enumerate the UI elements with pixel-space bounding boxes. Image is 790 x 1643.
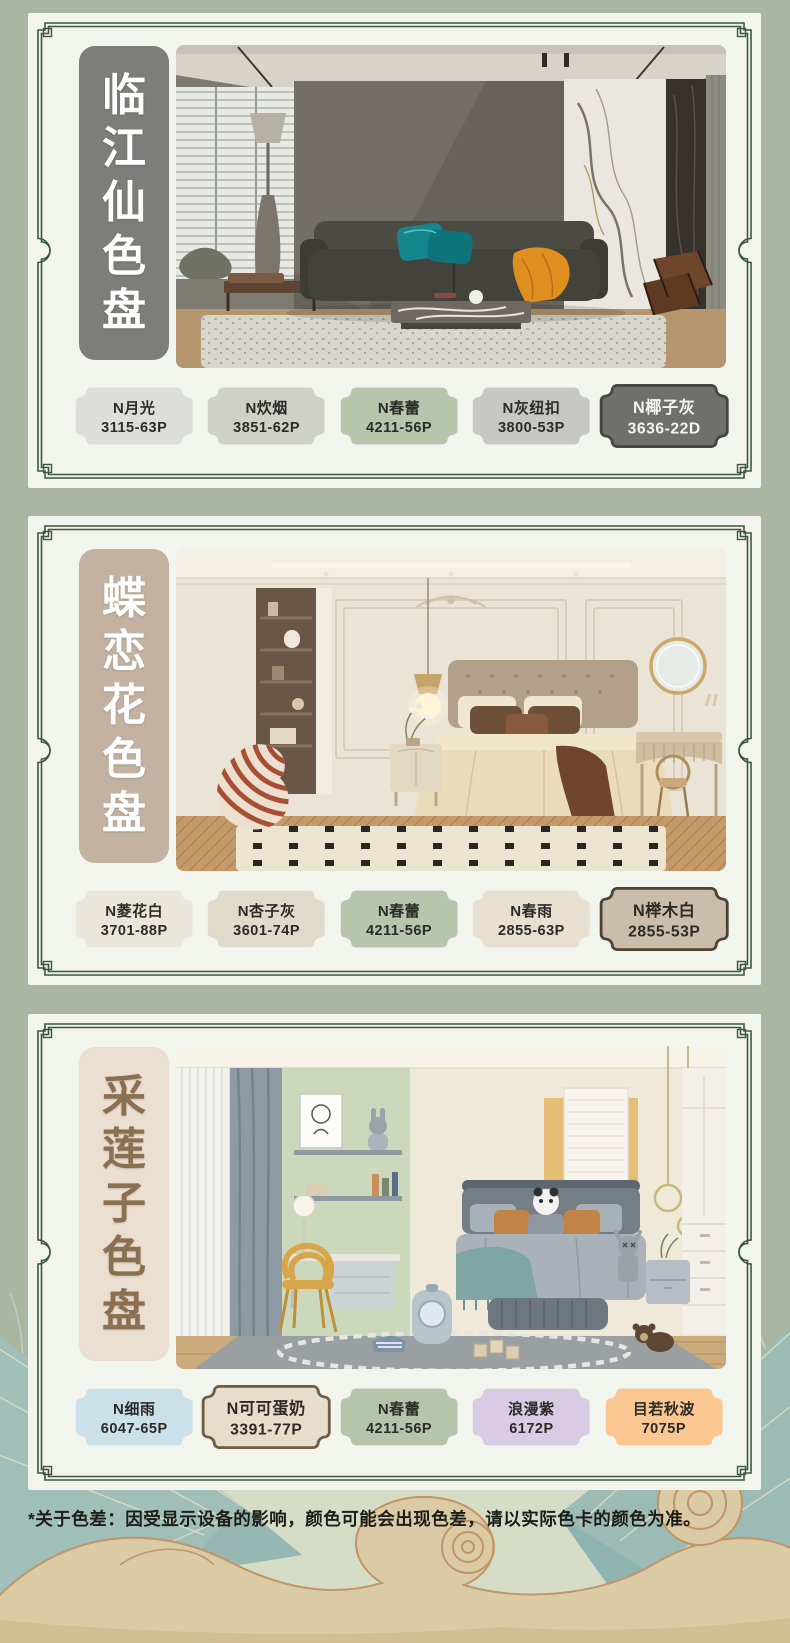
swatch-name: N春蕾 xyxy=(378,900,420,921)
palette-title-block: 蝶恋花色盘 xyxy=(79,549,169,863)
swatch-name: N细雨 xyxy=(113,1398,155,1419)
swatch-name: 目若秋波 xyxy=(633,1398,695,1419)
swatch-name: N炊烟 xyxy=(245,397,287,418)
page-root: 临江仙色盘 xyxy=(0,0,790,1643)
palette-card-dielianhua: 蝶恋花色盘 xyxy=(28,516,761,985)
swatch-name: N椰子灰 xyxy=(633,395,695,418)
palette-title-block: 采莲子色盘 xyxy=(79,1047,169,1361)
swatch-name: N杏子灰 xyxy=(238,900,296,921)
swatch-name: N灰纽扣 xyxy=(503,397,561,418)
room-photo-kidsroom xyxy=(176,1046,726,1369)
palette-card-linjiangxian: 临江仙色盘 xyxy=(28,13,761,488)
swatch-code: 2855-53P xyxy=(628,923,700,940)
swatch-code: 3800-53P xyxy=(498,420,565,436)
swatch-code: 3851-62P xyxy=(233,420,300,436)
swatch-name: N榉木白 xyxy=(633,898,695,921)
swatch-name: N菱花白 xyxy=(105,900,163,921)
color-swatch-highlighted: N榉木白 2855-53P xyxy=(598,886,730,953)
swatch-name: 浪漫紫 xyxy=(508,1398,555,1419)
palette-card-cailianzi: 采莲子色盘 xyxy=(28,1014,761,1490)
swatch-code: 3636-22D xyxy=(627,420,700,437)
color-swatch: N月光 3115-63P xyxy=(73,385,195,447)
swatch-name: N春雨 xyxy=(510,900,552,921)
color-swatch: N春蕾 4211-56P xyxy=(338,1386,460,1448)
color-swatch: N春雨 2855-63P xyxy=(470,888,592,950)
swatch-row: N细雨 6047-65P N可可蛋奶 3391-77P N春蕾 xyxy=(73,1386,725,1448)
palette-title: 采莲子色盘 xyxy=(102,1070,146,1338)
color-swatch: N杏子灰 3601-74P xyxy=(205,888,327,950)
swatch-code: 6172P xyxy=(509,1421,553,1437)
swatch-code: 6047-65P xyxy=(101,1421,168,1437)
color-swatch: N春蕾 4211-56P xyxy=(338,888,460,950)
color-swatch-highlighted: N可可蛋奶 3391-77P xyxy=(201,1384,333,1451)
swatch-code: 3601-74P xyxy=(233,923,300,939)
swatch-name: N春蕾 xyxy=(378,1398,420,1419)
swatch-code: 3391-77P xyxy=(230,1421,302,1438)
color-swatch: N菱花白 3701-88P xyxy=(73,888,195,950)
color-swatch: 目若秋波 7075P xyxy=(603,1386,725,1448)
swatch-code: 3115-63P xyxy=(101,420,167,436)
swatch-name: N月光 xyxy=(113,397,155,418)
swatch-code: 4211-56P xyxy=(366,923,432,939)
swatch-code: 3701-88P xyxy=(101,923,168,939)
swatch-code: 4211-56P xyxy=(366,1421,432,1437)
color-swatch: N细雨 6047-65P xyxy=(73,1386,195,1448)
room-photo-livingroom xyxy=(176,45,726,368)
swatch-code: 4211-56P xyxy=(366,420,432,436)
swatch-code: 7075P xyxy=(642,1421,686,1437)
footer-disclaimer: *关于色差：因受显示设备的影响，颜色可能会出现色差，请以实际色卡的颜色为准。 xyxy=(28,1506,701,1531)
color-swatch: N春蕾 4211-56P xyxy=(338,385,460,447)
swatch-row: N菱花白 3701-88P N杏子灰 3601-74P N春蕾 xyxy=(73,888,725,950)
swatch-name: N可可蛋奶 xyxy=(227,1396,306,1419)
color-swatch: N灰纽扣 3800-53P xyxy=(470,385,592,447)
palette-title: 临江仙色盘 xyxy=(102,69,146,337)
color-swatch: N炊烟 3851-62P xyxy=(205,385,327,447)
palette-title-block: 临江仙色盘 xyxy=(79,46,169,360)
color-swatch: 浪漫紫 6172P xyxy=(470,1386,592,1448)
swatch-name: N春蕾 xyxy=(378,397,420,418)
swatch-code: 2855-63P xyxy=(498,923,565,939)
color-swatch-highlighted: N椰子灰 3636-22D xyxy=(598,383,730,450)
swatch-row: N月光 3115-63P N炊烟 3851-62P N春蕾 xyxy=(73,385,725,447)
room-photo-bedroom xyxy=(176,548,726,871)
palette-title: 蝶恋花色盘 xyxy=(102,572,146,840)
